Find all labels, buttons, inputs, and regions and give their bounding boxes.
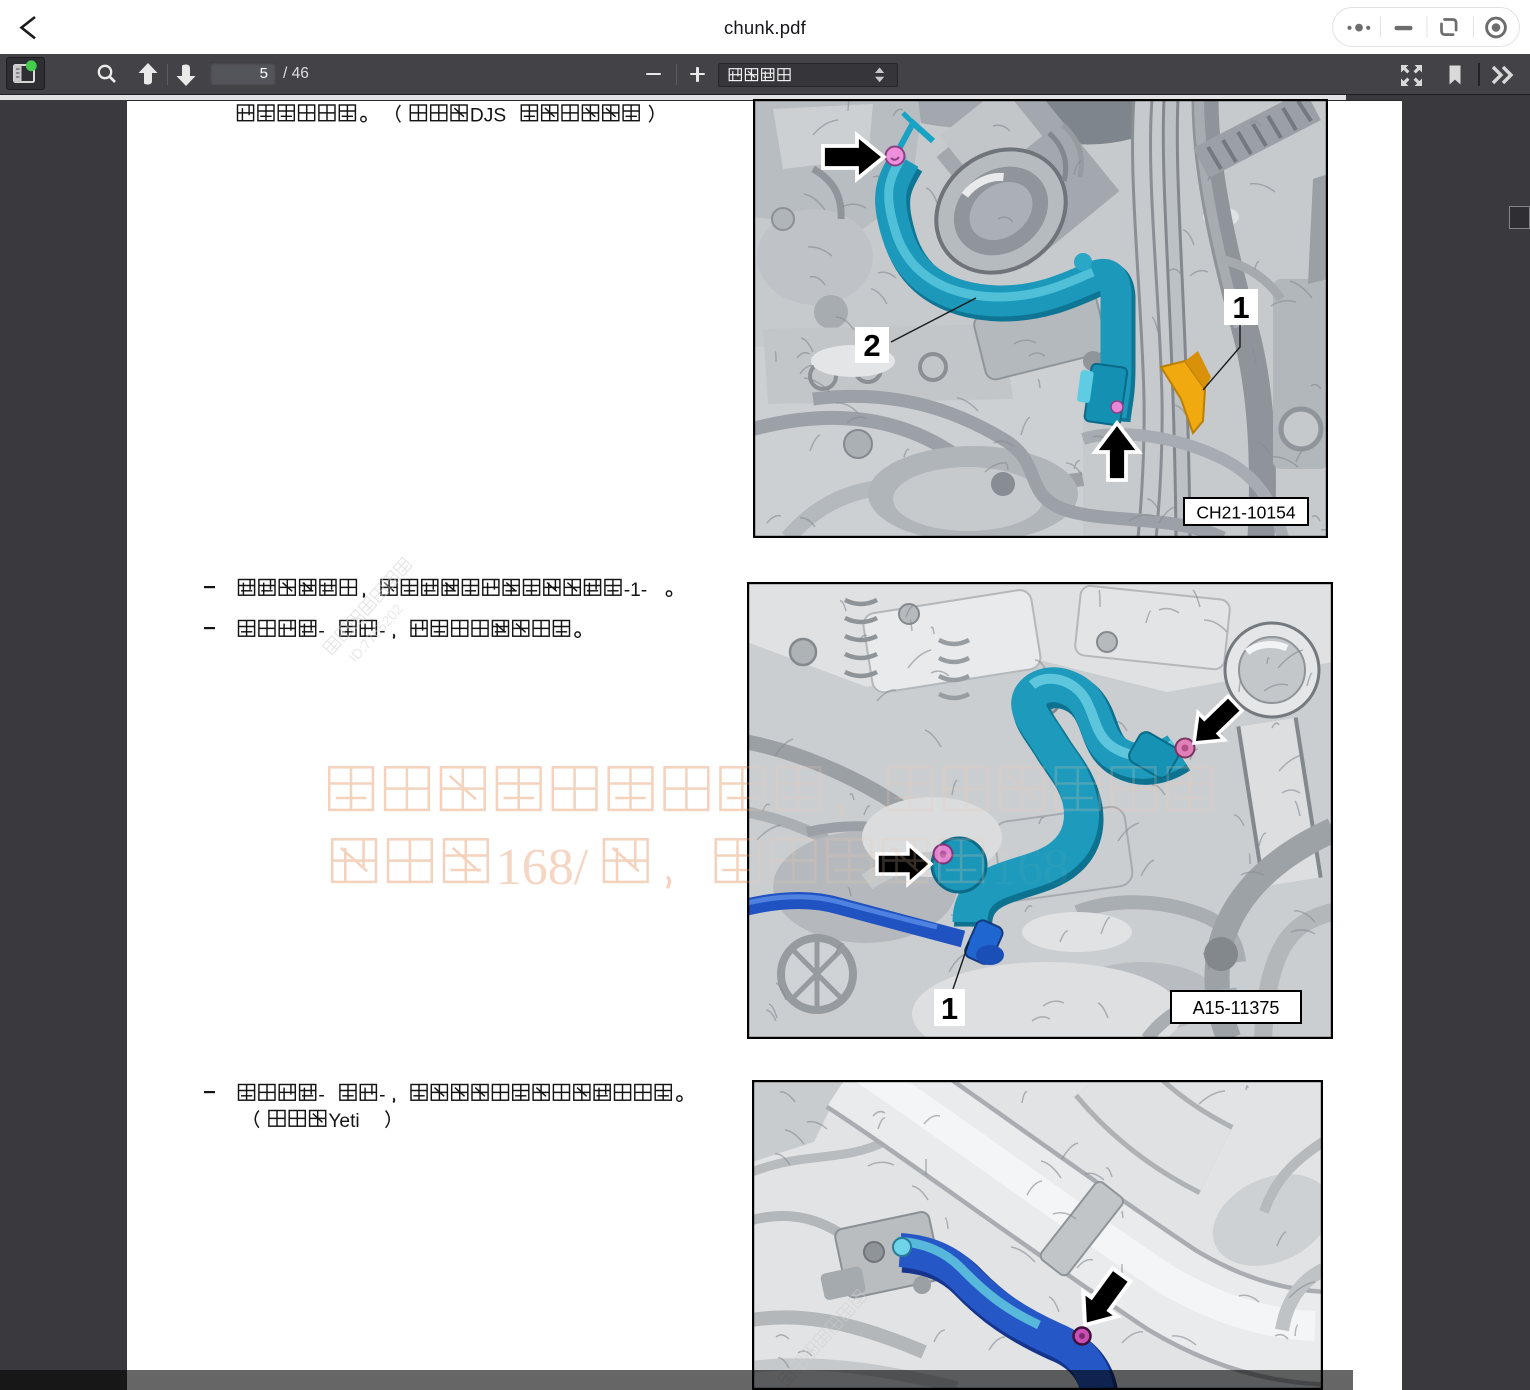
svg-text:168: 168 <box>991 839 1069 896</box>
svg-text:168/: 168/ <box>496 839 589 896</box>
